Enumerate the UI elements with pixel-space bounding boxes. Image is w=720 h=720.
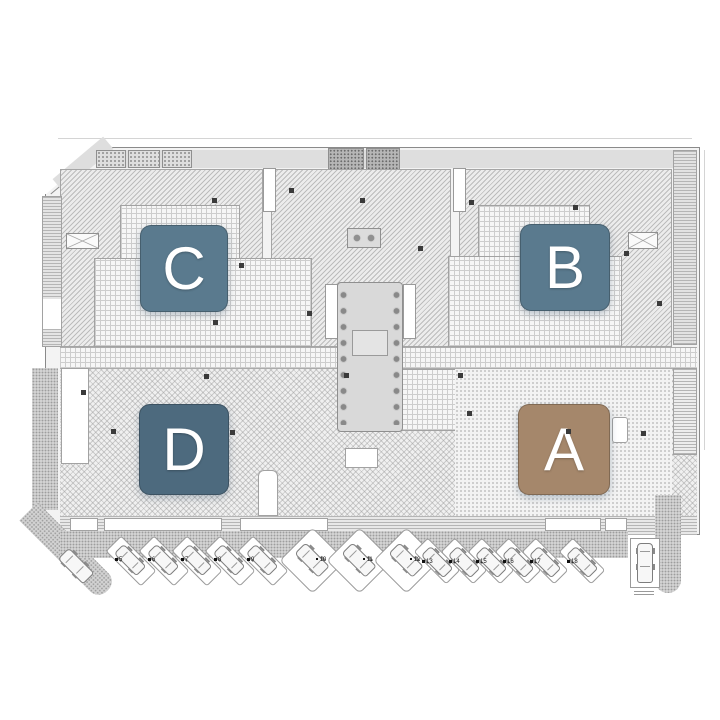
walkway bbox=[258, 470, 278, 516]
driveway-car bbox=[66, 544, 86, 586]
planting-bed bbox=[128, 150, 160, 168]
left-road bbox=[32, 368, 58, 510]
planting-bed bbox=[96, 150, 126, 168]
block-b-label: B bbox=[545, 238, 585, 298]
planting-bed bbox=[162, 150, 192, 168]
stall-dimension-mark bbox=[634, 591, 654, 595]
core-side-slot bbox=[403, 284, 416, 339]
block-d-label: D bbox=[162, 420, 205, 480]
block-a-label: A bbox=[544, 420, 584, 480]
column-row-right bbox=[390, 287, 403, 425]
roof-slot bbox=[453, 168, 466, 212]
left-louver-gap bbox=[43, 299, 61, 329]
stair bbox=[352, 330, 388, 356]
right-edge-band-lower bbox=[673, 368, 697, 455]
column-row-left bbox=[337, 287, 350, 425]
block-c-label: C bbox=[162, 239, 205, 299]
stall-number: 13 bbox=[422, 559, 433, 565]
entrance-canopy bbox=[545, 518, 601, 531]
block-c[interactable]: C bbox=[140, 225, 228, 312]
plaza-pad bbox=[345, 448, 378, 468]
block-a[interactable]: A bbox=[518, 404, 610, 495]
block-b[interactable]: B bbox=[520, 224, 610, 311]
outer-boundary-right bbox=[704, 150, 705, 450]
entrance-canopy bbox=[70, 518, 98, 531]
parking-apron bbox=[60, 531, 628, 558]
car-icon bbox=[637, 543, 653, 583]
stall-number: 15 bbox=[476, 559, 487, 565]
site-plan: 56789 101112 131415161718 C B D A bbox=[0, 0, 720, 720]
roof-slot bbox=[263, 168, 276, 212]
walkway bbox=[612, 417, 628, 443]
entrance-canopy bbox=[240, 518, 328, 531]
stall-number: 18 bbox=[567, 559, 578, 565]
block-d[interactable]: D bbox=[139, 404, 229, 495]
parking-stall-vertical bbox=[630, 538, 660, 588]
right-edge-band bbox=[673, 150, 697, 345]
skylight bbox=[66, 233, 99, 249]
twin-column-pad bbox=[347, 228, 381, 248]
entrance-canopy bbox=[104, 518, 222, 531]
outer-boundary-top bbox=[58, 138, 692, 139]
drain-markers bbox=[0, 0, 3, 3]
stall-number: 14 bbox=[449, 559, 460, 565]
entrance-canopy bbox=[605, 518, 627, 531]
stall-number: 17 bbox=[530, 559, 541, 565]
site-border-top bbox=[100, 147, 700, 148]
skylight bbox=[628, 232, 658, 249]
site-border-right bbox=[699, 147, 700, 535]
ramp bbox=[61, 368, 89, 464]
stall-number: 16 bbox=[503, 559, 514, 565]
